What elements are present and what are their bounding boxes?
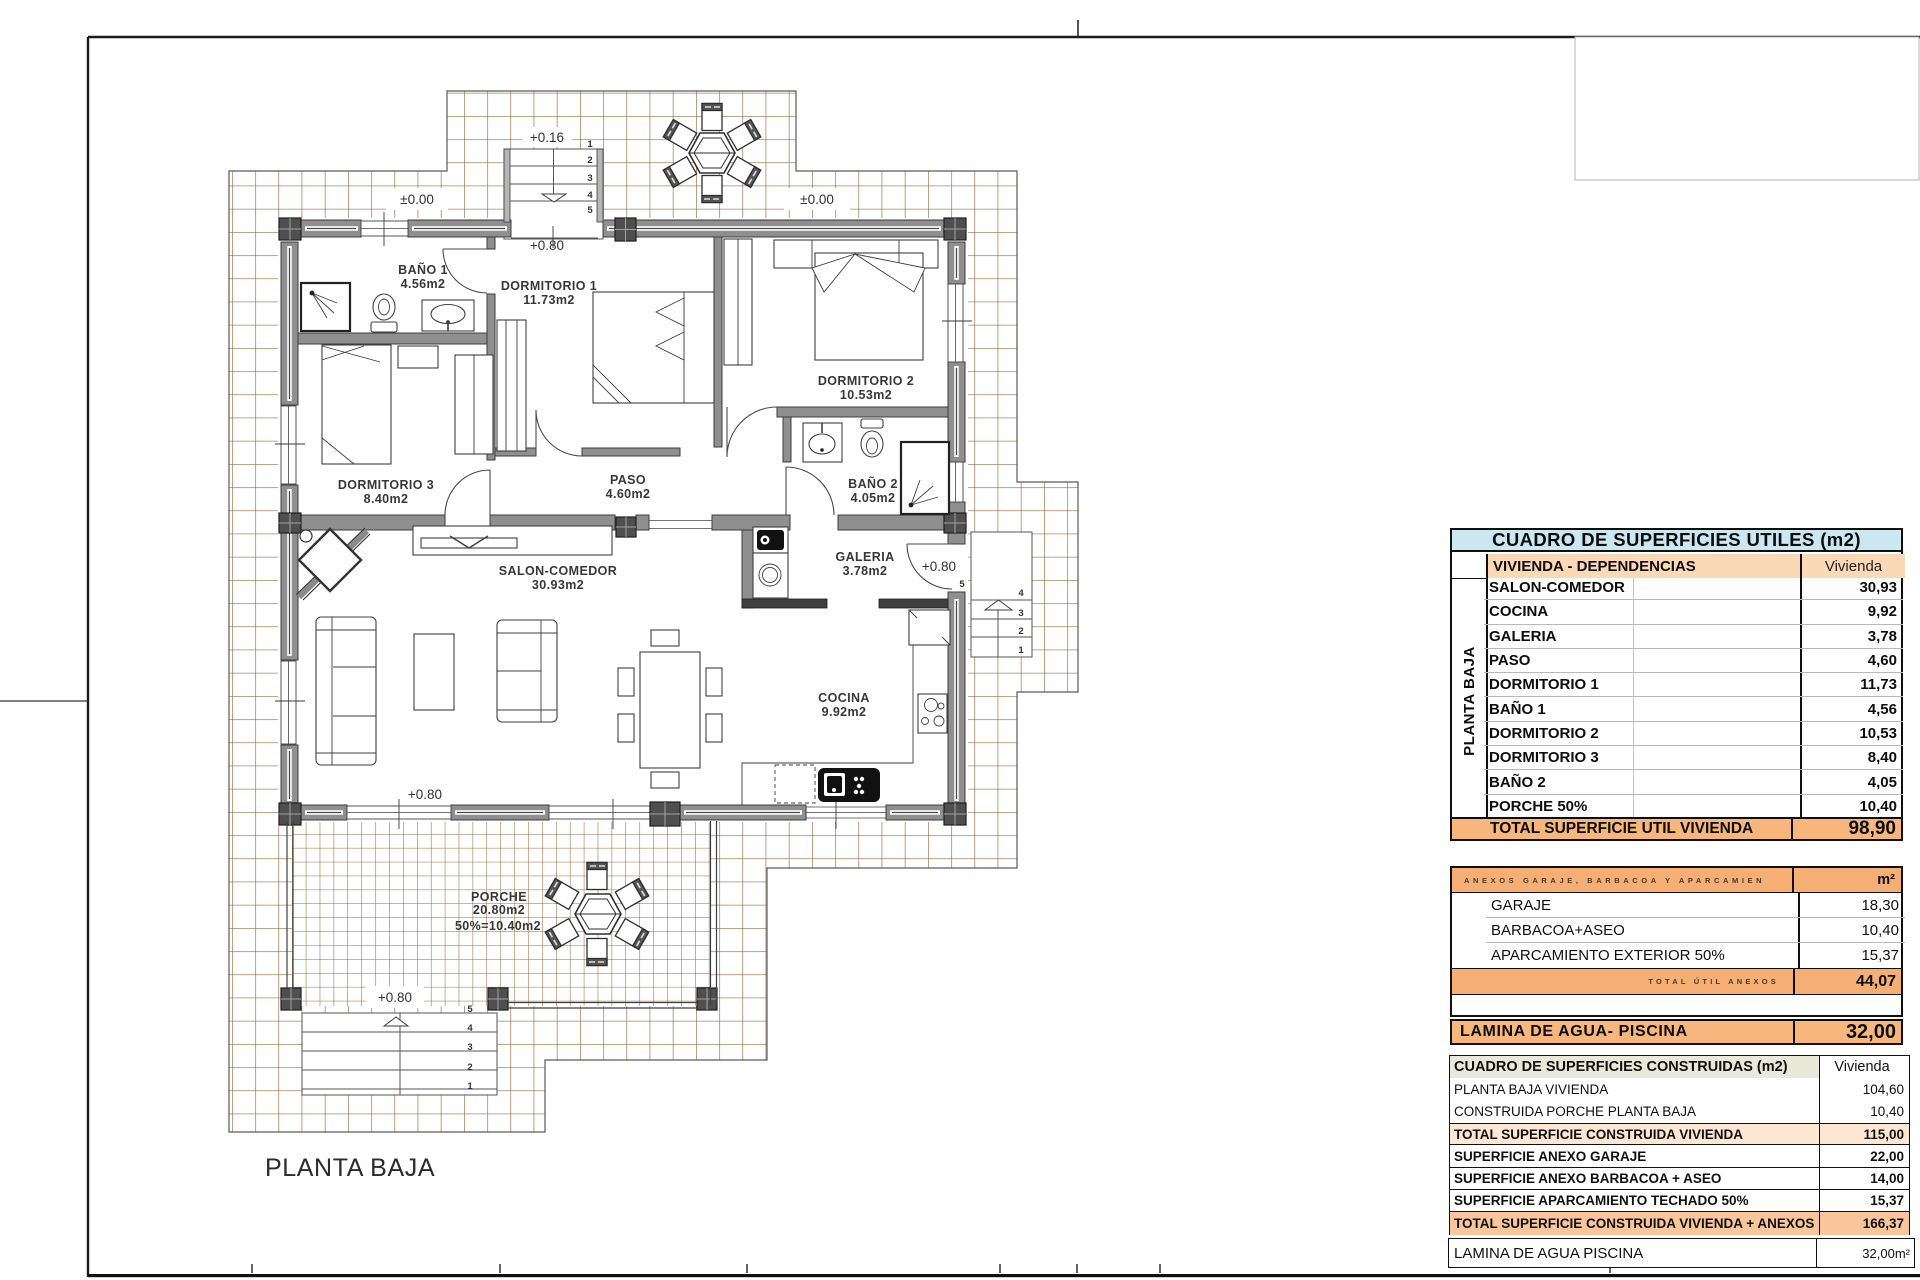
svg-text:9.92m2: 9.92m2	[822, 705, 867, 719]
svg-text:DORMITORIO 1: DORMITORIO 1	[501, 279, 597, 293]
svg-text:3.78m2: 3.78m2	[843, 564, 888, 578]
svg-text:4: 4	[467, 1023, 473, 1034]
svg-text:PORCHE: PORCHE	[471, 890, 527, 904]
svg-text:±0.00: ±0.00	[800, 192, 834, 207]
svg-text:COCINA: COCINA	[818, 691, 870, 705]
svg-text:1: 1	[587, 139, 593, 150]
svg-text:1: 1	[467, 1081, 473, 1092]
svg-text:4.56m2: 4.56m2	[401, 277, 446, 291]
svg-text:1: 1	[1018, 645, 1024, 656]
svg-text:8.40m2: 8.40m2	[364, 492, 409, 506]
svg-text:BAÑO 1: BAÑO 1	[398, 262, 448, 277]
svg-text:BAÑO 2: BAÑO 2	[848, 476, 898, 491]
svg-text:+0.80: +0.80	[408, 787, 442, 802]
svg-text:DORMITORIO 3: DORMITORIO 3	[338, 478, 434, 492]
svg-text:SALON-COMEDOR: SALON-COMEDOR	[499, 564, 617, 578]
svg-text:PASO: PASO	[610, 473, 646, 487]
svg-text:DORMITORIO 2: DORMITORIO 2	[818, 374, 914, 388]
svg-text:50%=10.40m2: 50%=10.40m2	[455, 919, 541, 933]
svg-text:+0.16: +0.16	[530, 130, 564, 145]
svg-text:+0.80: +0.80	[922, 559, 956, 574]
svg-text:3: 3	[1018, 608, 1023, 619]
svg-text:±0.00: ±0.00	[400, 192, 434, 207]
svg-text:3: 3	[467, 1042, 472, 1053]
svg-text:30.93m2: 30.93m2	[532, 578, 584, 592]
svg-text:4: 4	[587, 190, 593, 201]
svg-text:20.80m2: 20.80m2	[473, 903, 525, 917]
svg-text:5: 5	[587, 205, 593, 216]
svg-text:10.53m2: 10.53m2	[840, 388, 892, 402]
svg-text:+0.80: +0.80	[530, 238, 564, 253]
svg-text:5: 5	[959, 579, 965, 590]
svg-text:3: 3	[587, 173, 592, 184]
svg-text:4: 4	[1018, 588, 1024, 599]
svg-text:2: 2	[587, 155, 592, 166]
svg-text:5: 5	[467, 1004, 473, 1015]
svg-text:+0.80: +0.80	[378, 990, 412, 1005]
svg-text:11.73m2: 11.73m2	[523, 293, 574, 307]
svg-text:2: 2	[1018, 626, 1023, 637]
svg-text:4.60m2: 4.60m2	[606, 487, 651, 501]
svg-text:2: 2	[467, 1062, 472, 1073]
svg-text:PLANTA BAJA: PLANTA BAJA	[265, 1154, 435, 1182]
svg-text:GALERIA: GALERIA	[835, 550, 894, 564]
svg-text:4.05m2: 4.05m2	[851, 491, 896, 505]
